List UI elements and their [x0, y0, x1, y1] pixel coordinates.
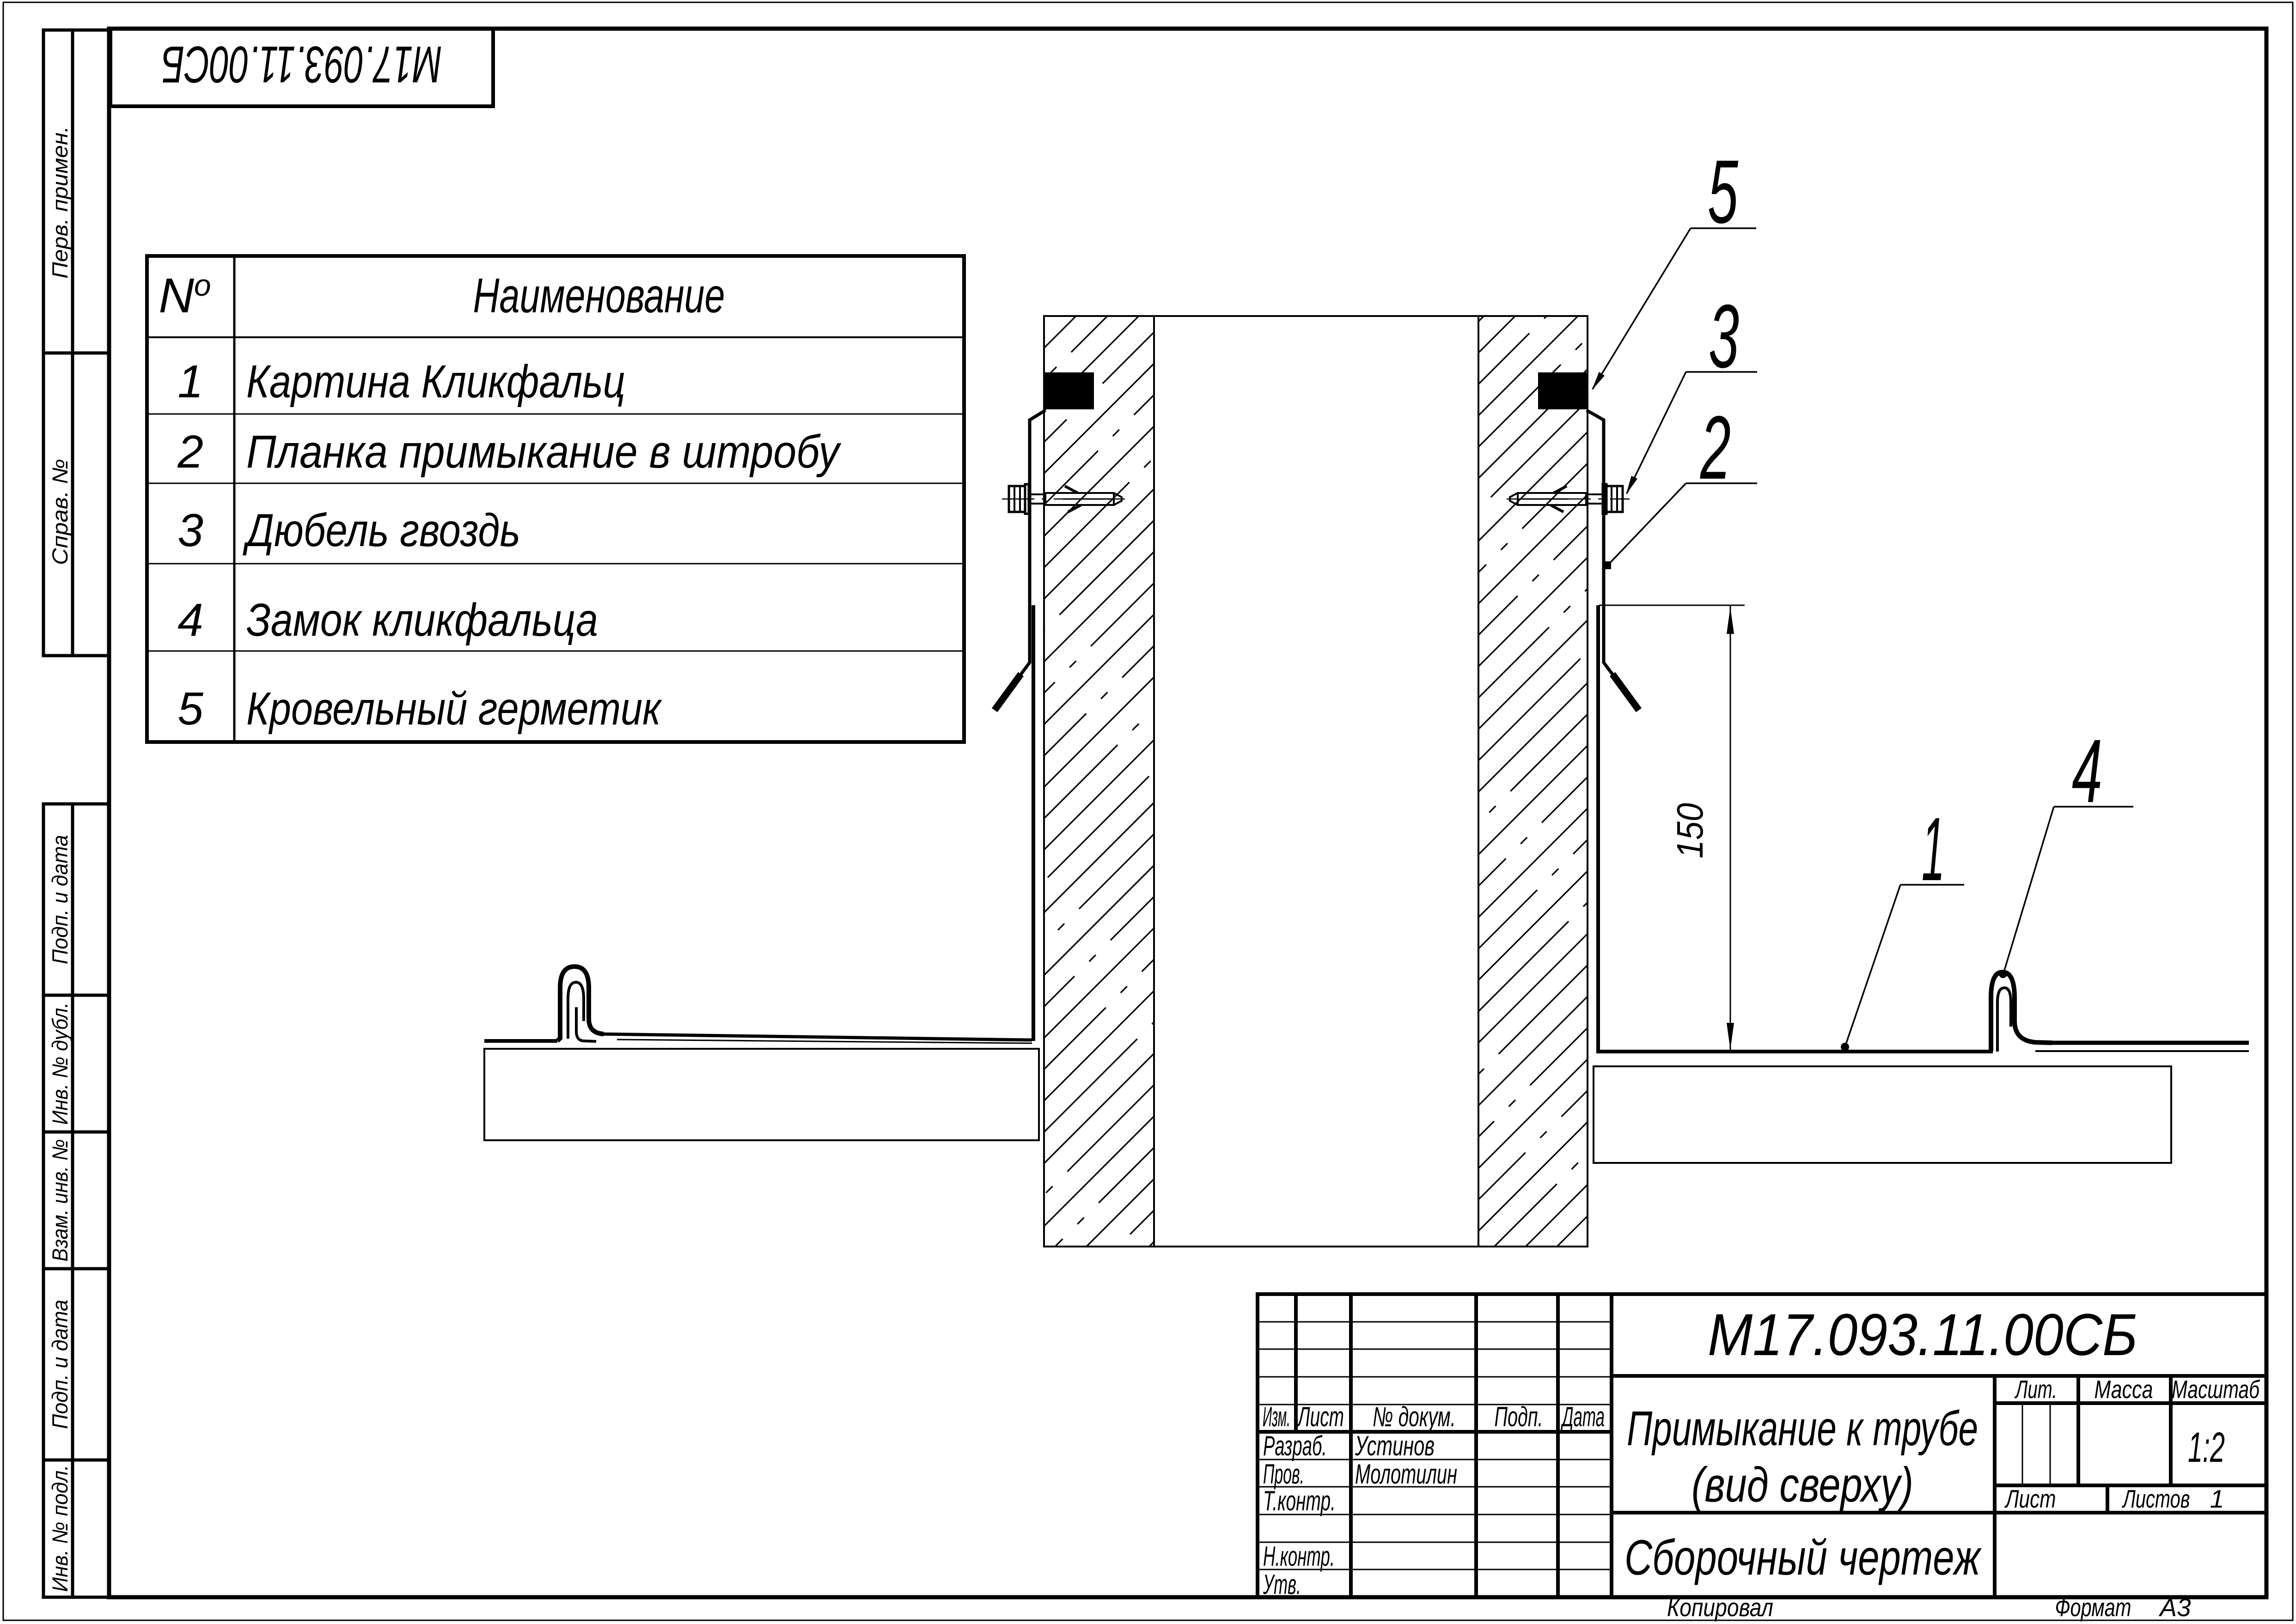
svg-text:Листов: Листов — [2122, 1484, 2190, 1513]
svg-text:Копировал: Копировал — [1667, 1593, 1773, 1622]
svg-text:1:2: 1:2 — [2188, 1424, 2225, 1471]
svg-text:Планка примыкание в штробу: Планка примыкание в штробу — [246, 426, 842, 478]
svg-text:А3: А3 — [2158, 1593, 2191, 1622]
svg-text:Н.контр.: Н.контр. — [1263, 1541, 1335, 1572]
svg-text:4: 4 — [177, 594, 203, 646]
svg-text:Утв.: Утв. — [1263, 1569, 1301, 1600]
svg-text:Масса: Масса — [2094, 1375, 2153, 1404]
svg-text:Дюбель гвоздь: Дюбель гвоздь — [243, 505, 520, 556]
svg-text:Кровельный герметик: Кровельный герметик — [246, 683, 662, 735]
svg-text:№ докум.: № докум. — [1373, 1401, 1456, 1432]
svg-text:Т.контр.: Т.контр. — [1263, 1485, 1336, 1516]
svg-text:3: 3 — [177, 505, 203, 556]
svg-text:Молотилин: Молотилин — [1355, 1459, 1457, 1490]
svg-text:М17.093.11.00СБ: М17.093.11.00СБ — [162, 36, 442, 93]
svg-text:Примыкание к трубе: Примыкание к трубе — [1627, 1401, 1978, 1456]
svg-text:5: 5 — [177, 683, 203, 735]
svg-text:Инв. № подл.: Инв. № подл. — [48, 1465, 72, 1592]
svg-text:М17.093.11.00СБ: М17.093.11.00СБ — [1708, 1302, 2137, 1368]
svg-text:1: 1 — [177, 356, 203, 408]
svg-text:Подп.: Подп. — [1495, 1401, 1543, 1432]
svg-text:Подп. и дата: Подп. и дата — [48, 835, 72, 964]
svg-text:Инв. № дубл.: Инв. № дубл. — [48, 1003, 72, 1125]
svg-text:5: 5 — [1708, 141, 1738, 242]
svg-text:Подп. и дата: Подп. и дата — [48, 1300, 72, 1429]
svg-text:Взам. инв. №: Взам. инв. № — [48, 1139, 72, 1262]
svg-text:1: 1 — [2210, 1484, 2224, 1513]
svg-text:Лист: Лист — [2004, 1484, 2056, 1513]
svg-text:Формат: Формат — [2055, 1593, 2131, 1622]
svg-text:Дата: Дата — [1561, 1401, 1605, 1432]
svg-text:Устинов: Устинов — [1355, 1430, 1435, 1461]
svg-text:Масштаб: Масштаб — [2172, 1375, 2260, 1404]
svg-text:Сборочный чертеж: Сборочный чертеж — [1624, 1529, 1982, 1585]
svg-text:150: 150 — [1669, 803, 1710, 858]
svg-text:Лист: Лист — [1296, 1401, 1344, 1432]
svg-text:Справ. №: Справ. № — [48, 459, 72, 565]
svg-text:Изм.: Изм. — [1263, 1401, 1290, 1432]
svg-text:(вид сверху): (вид сверху) — [1691, 1458, 1913, 1512]
svg-text:Наименование: Наименование — [473, 268, 725, 323]
svg-text:Разраб.: Разраб. — [1263, 1430, 1327, 1461]
svg-text:Картина Кликфальц: Картина Кликфальц — [246, 356, 625, 408]
svg-text:Перв. примен.: Перв. примен. — [48, 126, 72, 279]
svg-text:Лит.: Лит. — [2015, 1375, 2057, 1404]
svg-text:Замок кликфальца: Замок кликфальца — [246, 594, 598, 646]
svg-text:2: 2 — [177, 426, 203, 478]
svg-text:Пров.: Пров. — [1263, 1459, 1304, 1490]
